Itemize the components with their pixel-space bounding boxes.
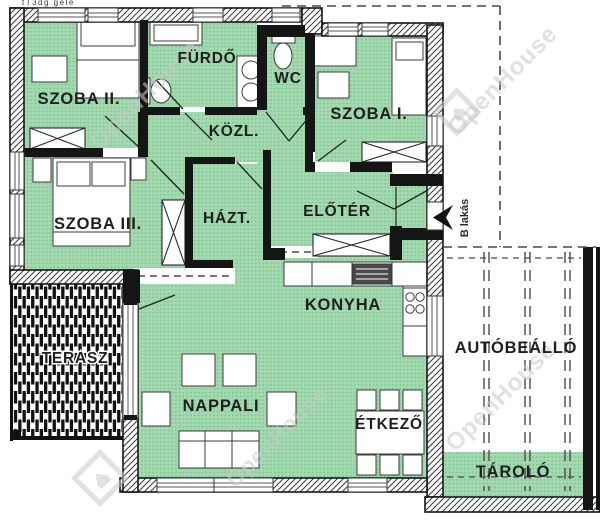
sliding-door-nappali: [157, 478, 273, 492]
room-label-hazt: HÁZT.: [203, 210, 251, 227]
watermark-house-icon: [75, 453, 126, 504]
room-label-etkezo: ÉTKEZŐ: [355, 415, 423, 433]
wardrobe-corridor: [162, 200, 185, 265]
room-label-szoba2: SZOBA II.: [38, 90, 121, 108]
room-label-terasz: TERASZ: [42, 350, 109, 367]
floorplan: OpenHouse OpenHouse OpenHouse OpenHouse …: [0, 0, 600, 522]
room-label-autobeallo: AUTÓBEÁLLÓ: [455, 338, 578, 357]
terrace-glass-door: [123, 300, 138, 420]
window-top-szoba2-b: [88, 8, 118, 22]
window-top-szoba1-a: [328, 23, 358, 36]
window-top-furdo: [193, 8, 223, 22]
room-label-tarolo: TÁROLÓ: [476, 462, 550, 481]
room-label-furdo: FÜRDŐ: [177, 49, 236, 67]
window-left-szoba3-c: [10, 245, 24, 266]
window-top-szoba1-b: [362, 23, 388, 36]
carport-walls: [583, 247, 600, 510]
room-label-wc: WC: [274, 70, 301, 87]
wardrobe-szoba2: [30, 128, 85, 149]
room-label-szoba1: SZOBA I.: [330, 105, 407, 123]
room-label-konyha: KONYHA: [305, 296, 381, 314]
room-label-kozl: KÖZL.: [209, 123, 260, 140]
room-label-nappali: NAPPALI: [183, 397, 260, 415]
wardrobe-szoba1: [362, 142, 426, 162]
clipped-text-fragment: tT3dg gele: [22, 0, 75, 7]
b-lakas-label: B lakás: [459, 199, 471, 238]
room-label-eloter: ELŐTÉR: [303, 202, 371, 220]
window-right-konyha: [427, 296, 443, 356]
window-bottom-etkezo: [348, 478, 387, 492]
window-right-szoba1: [427, 116, 443, 146]
window-top-wc: [272, 8, 300, 22]
wardrobe-eloter: [313, 234, 390, 256]
room-label-szoba3: SZOBA III.: [54, 215, 142, 233]
window-top-szoba2-a: [38, 8, 85, 22]
watermark-text: OpenHouse: [442, 20, 563, 141]
floorplan-svg: OpenHouse OpenHouse OpenHouse OpenHouse …: [0, 0, 600, 522]
window-left-szoba3-a: [10, 152, 24, 190]
window-left-szoba3-b: [10, 194, 24, 238]
